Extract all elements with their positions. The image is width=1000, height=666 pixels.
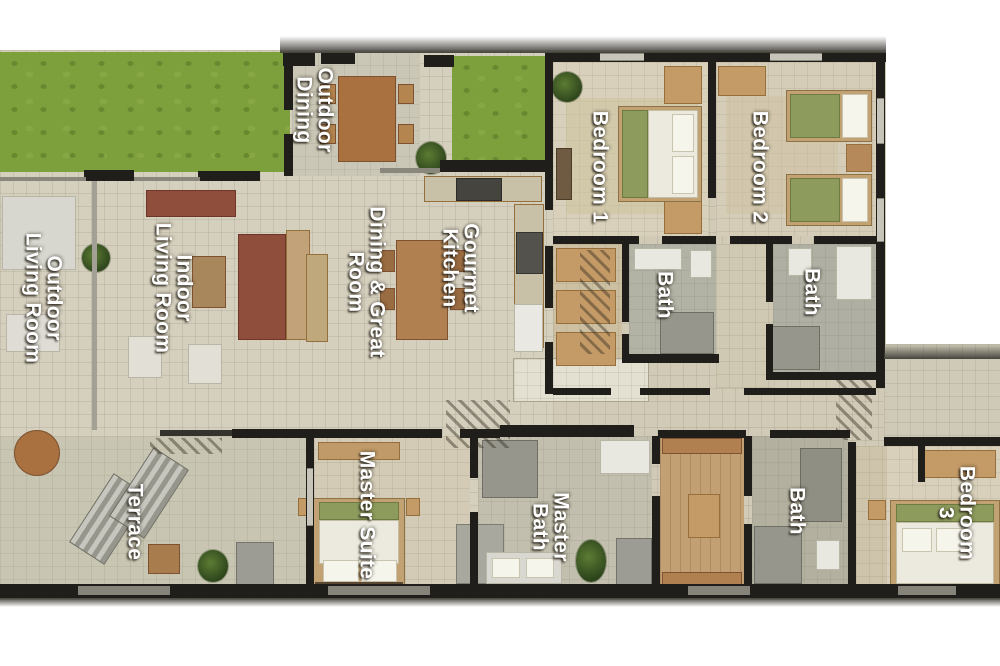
window [770,53,822,61]
wall-sill [380,168,440,173]
potted-plant-bedroom-1 [552,72,582,102]
bedroom-1-blanket [622,110,648,198]
terrace-plant [198,550,228,582]
wall-segment [658,430,746,438]
bedroom-1-nightstand-top [664,66,702,104]
sofa-vertical [238,234,286,340]
wall-segment [640,388,710,395]
wall-segment [622,244,629,322]
wall-segment [84,170,134,181]
floor-plan: Outdoor Dining Bedroom 1 Bedroom 2 Bath … [0,0,1000,666]
wall-segment [622,354,719,363]
wall-segment [766,244,773,302]
wall-segment [424,55,454,67]
window [78,586,170,595]
room-label-outdoor-living-room: Outdoor Living Room [22,233,65,363]
wall-segment [470,436,478,478]
window [688,586,750,595]
wall-segment [283,52,315,66]
bath-1-toilet [690,250,712,278]
wall-segment [744,436,752,496]
room-label-bath-3: Bath [786,487,807,535]
room-label-dining-great-room: Dining & Great Room [345,206,388,357]
kitchen-range [456,178,502,201]
master-armchair [616,538,652,586]
wall-segment [770,430,850,438]
room-label-bath-2: Bath [801,268,822,316]
coffee-table [192,256,226,308]
wall-segment [884,437,1000,446]
wall-segment [553,236,639,244]
lawn-courtyard [452,56,546,166]
wall-segment [500,425,634,437]
window [307,468,313,526]
room-label-indoor-living-room: Indoor Living Room [152,223,195,353]
closet-island [688,494,720,538]
wall-segment [321,53,355,64]
window [877,98,884,144]
refrigerator [514,304,543,352]
shadow-trail [580,250,610,354]
wall-segment [662,236,716,244]
shadow-trail [150,438,222,454]
wall-segment [744,524,752,588]
room-label-bedroom-3: Bedroom 3 [935,466,978,560]
wall-segment [470,512,478,588]
wall-segment [848,442,856,588]
window [898,586,956,595]
bath-2-shower [772,326,820,370]
sofa-horizontal [146,190,236,217]
bedroom-3-pillow [902,528,932,552]
wall-segment [918,446,925,482]
outdoor-dining-chair [398,84,414,104]
closet-shelf-top [662,438,742,454]
terrace-chair [236,542,274,586]
wall-segment [652,496,660,588]
bedroom-2-bed-1-pillow [842,94,868,138]
wall-segment [440,160,546,172]
window [600,53,644,61]
room-label-bedroom-1: Bedroom 1 [589,111,610,223]
floor-hallway [716,244,773,388]
wall-segment [198,171,260,181]
outdoor-dining-table [338,76,396,162]
wall-sill [134,177,200,181]
wall-segment [766,372,876,380]
terrace-round-table [14,430,60,476]
room-label-master-bath: Master Bath [529,492,572,562]
wall-segment [232,429,442,438]
window [877,198,884,242]
outdoor-dining-chair [398,124,414,144]
bedroom-2-nightstand [846,144,872,172]
roof-shadow-bottom [0,598,1000,607]
bedroom-3-nightstand [868,500,886,520]
wall-segment [545,62,553,210]
bedroom-2-bed-1-blanket [790,94,840,138]
wall-segment [730,236,792,244]
wall-sill [0,177,86,181]
bath-1-vanity [634,248,682,270]
wall-segment [545,246,553,308]
kitchen-appliance [516,232,543,274]
wall-segment [545,342,553,394]
wall-segment [553,388,611,395]
wall-segment [160,430,236,436]
wall-segment [744,388,876,395]
room-label-outdoor-dining: Outdoor Dining [293,68,336,153]
master-tub [600,440,650,474]
master-plant [576,540,606,582]
room-label-bath-1: Bath [654,271,675,319]
wall-segment [708,62,716,198]
roof-shadow-right-extension [884,344,1000,359]
bedroom-1-pillow [672,114,694,152]
room-label-terrace: Terrace [124,484,145,560]
bath-3-toilet [816,540,840,570]
window [328,586,430,595]
master-nightstand [406,498,420,516]
shadow-trail [446,400,510,448]
terrace-side-table [148,544,180,574]
media-console [306,254,328,342]
bath-2-vanity [836,246,872,300]
room-label-bedroom-2: Bedroom 2 [749,111,770,223]
glass-wall-outdoor-living [92,178,97,430]
bedroom-1-dresser [556,148,572,200]
master-bed-pillow [323,560,359,582]
bedroom-1-pillow [672,156,694,194]
wall-top-bedrooms [545,52,886,62]
wall-segment [652,436,660,464]
master-sink [492,558,520,578]
bedroom-2-bed-2-blanket [790,178,840,222]
roof-shadow-top [280,36,886,53]
wall-segment [460,429,500,438]
lawn-left [0,52,290,172]
bedroom-2-desk [718,66,766,96]
master-shower [482,440,538,498]
wall-segment [814,236,876,244]
room-label-gourmet-kitchen: Gourmet Kitchen [439,223,482,313]
room-label-master-suite: Master Suite [356,451,377,579]
bedroom-2-bed-2-pillow [842,178,868,222]
wall-segment [766,324,773,374]
